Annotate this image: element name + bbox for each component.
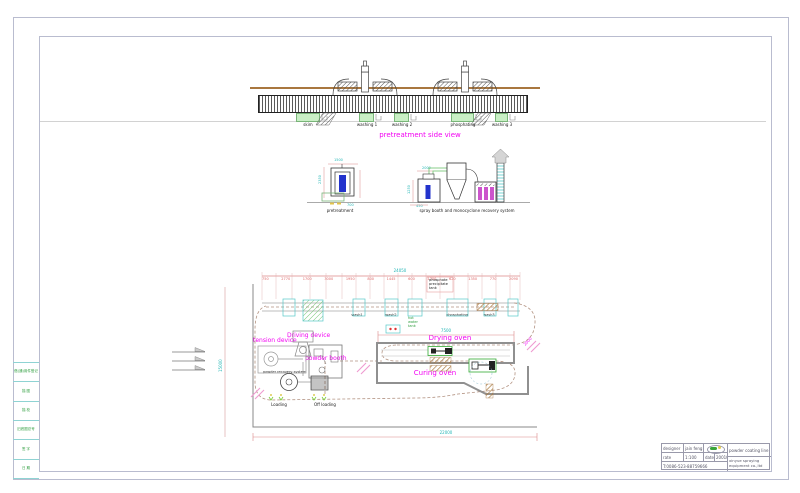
- powder-recovery-system: [281, 362, 329, 391]
- exhaust-fan-unit: [333, 61, 397, 95]
- load-station: [303, 300, 323, 321]
- plan-view: [172, 272, 540, 441]
- date-value: 200107: [715, 453, 728, 462]
- company-name: xinyue spraying equipment co.,ltd: [728, 457, 771, 471]
- spray-booth-system: [410, 149, 509, 205]
- date-label: date: [704, 453, 715, 462]
- product-name: powder coating line: [728, 444, 771, 457]
- rate-value: 1:100: [684, 453, 704, 462]
- designer-label: designer: [662, 444, 684, 453]
- drain-ramps: [316, 113, 491, 125]
- heated-section: [477, 304, 498, 311]
- bottom-dim-line: [253, 433, 537, 441]
- tension-device: [258, 346, 306, 373]
- drawing-vector-layer: [0, 0, 800, 493]
- top-dim-line: [262, 272, 520, 300]
- exhaust-fan-unit: [433, 61, 497, 95]
- break-marks: [251, 341, 540, 399]
- flow-arrow: [172, 352, 205, 370]
- company-logo-dot: [718, 446, 721, 449]
- rate-label: rate: [662, 453, 684, 462]
- phone: T:0086-523-88759666: [662, 462, 728, 471]
- curing-oven: [377, 359, 528, 398]
- driving-device: [293, 331, 313, 356]
- drawing-sheet: 借(通)用件登记描 图描 校旧底图总号签 字日 期 skim washing 1…: [0, 0, 800, 493]
- pretreatment-elevation: [322, 164, 360, 205]
- powder-booth: [309, 345, 342, 378]
- designer-value: jain feng: [684, 444, 704, 453]
- company-logo-bar: [710, 447, 717, 450]
- title-block: designer jain feng rate 1:100 date 20010…: [661, 443, 770, 470]
